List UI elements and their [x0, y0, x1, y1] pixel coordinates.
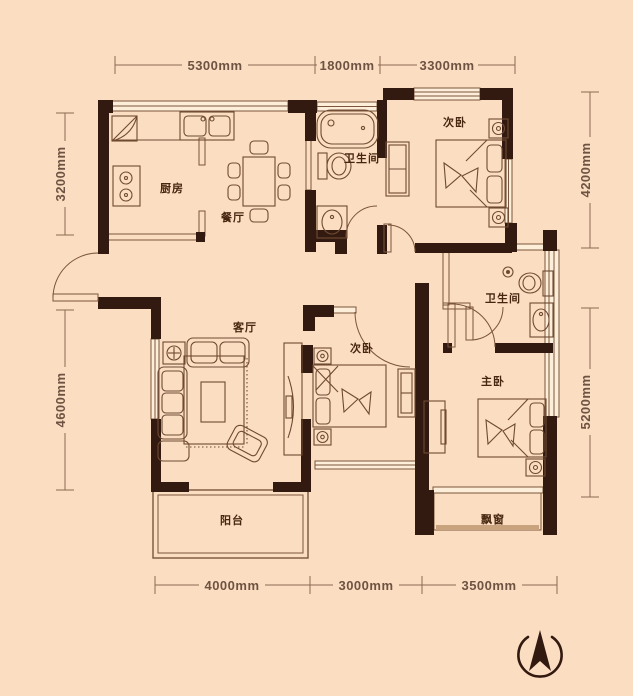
bathroom2-door: [466, 307, 503, 340]
dim-right-2: 5200mm: [578, 374, 593, 429]
dimensions-top: 5300mm 1800mm 3300mm: [115, 56, 515, 74]
room-label-bathroom1: 卫生间: [344, 151, 380, 165]
floor-plan-canvas: 厨房 餐厅 卫生间 次卧 客厅 次卧 卫生间 主卧 阳台 飘窗 5300mm 1…: [0, 0, 633, 696]
kitchen-sink: [180, 112, 234, 140]
loveseat: [187, 338, 249, 367]
wardrobe: [398, 369, 415, 417]
room-label-bathroom2: 卫生间: [485, 291, 521, 305]
wall-segment: [305, 190, 316, 252]
master-door: [448, 304, 495, 347]
entry-door: [53, 253, 98, 301]
floor-drain: [503, 267, 513, 277]
nightstand: [526, 459, 545, 476]
dim-top-1: 5300mm: [187, 58, 242, 73]
wall-segment: [417, 490, 434, 535]
doors: [53, 206, 503, 367]
room-label-balcony: 阳台: [220, 513, 244, 527]
dim-left-1: 3200mm: [53, 146, 68, 201]
living-furniture: [158, 338, 302, 464]
bathroom1-fixtures: [317, 110, 378, 238]
dim-bottom-2: 3000mm: [338, 578, 393, 593]
wall-segment: [151, 482, 189, 492]
dim-bottom-3: 3500mm: [461, 578, 516, 593]
corner-cabinet: [112, 116, 137, 141]
bedroom-top-door: [384, 224, 415, 252]
tv-cabinet: [284, 343, 302, 455]
coffee-table: [201, 382, 225, 422]
bay-window-east: [545, 250, 559, 417]
dimensions-right: 4200mm 5200mm: [578, 92, 599, 497]
wall-segment: [305, 100, 316, 141]
dim-bottom-1: 4000mm: [204, 578, 259, 593]
bathroom1-door: [346, 206, 377, 237]
room-label-living: 客厅: [232, 320, 257, 334]
wardrobe: [386, 142, 409, 196]
room-label-kitchen: 厨房: [160, 181, 184, 195]
window-bedroom-top: [414, 88, 480, 100]
room-label-bay-window: 飘窗: [481, 512, 505, 526]
chair: [250, 141, 268, 154]
dining-table: [243, 157, 275, 206]
wall-segment: [543, 230, 557, 251]
stove: [113, 166, 140, 206]
chair: [228, 185, 240, 200]
bed: [436, 140, 506, 207]
chair: [278, 185, 290, 200]
window-kitchen-top: [112, 101, 288, 111]
nightstand: [314, 348, 331, 364]
bedroom-mid-door: [355, 312, 410, 367]
dim-top-3: 3300mm: [419, 58, 474, 73]
room-label-dining: 餐厅: [220, 210, 245, 224]
dim-right-1: 4200mm: [578, 142, 593, 197]
wall-segment: [383, 88, 414, 100]
wall-segment: [303, 305, 315, 331]
bathtub: [317, 110, 378, 148]
window-bedroom-mid-bottom: [315, 461, 417, 469]
chair: [250, 209, 268, 222]
dim-left-2: 4600mm: [53, 372, 68, 427]
chair: [278, 163, 290, 178]
north-arrow-icon: [518, 630, 561, 677]
wall-segment: [335, 230, 347, 254]
wall-segment: [98, 112, 109, 242]
windows: [112, 88, 559, 530]
room-label-bedroom-mid: 次卧: [350, 341, 374, 355]
floor-plan-drawing: 厨房 餐厅 卫生间 次卧 客厅 次卧 卫生间 主卧 阳台 飘窗 5300mm 1…: [0, 0, 633, 696]
bed: [313, 365, 386, 427]
wall-segment: [377, 225, 387, 254]
wall-segment: [196, 232, 205, 242]
wall-segment: [151, 419, 161, 492]
master-furniture: [424, 399, 546, 476]
room-label-master: 主卧: [481, 374, 505, 388]
wall-segment: [495, 343, 553, 353]
dim-top-2: 1800mm: [319, 58, 374, 73]
dimensions-bottom: 4000mm 3000mm 3500mm: [155, 576, 557, 594]
wall-segment: [98, 240, 109, 254]
bedroom-top-furniture: [386, 119, 508, 227]
wall-segment: [415, 243, 512, 253]
side-table-lamp: [163, 342, 185, 364]
dining-furniture: [228, 141, 290, 222]
chair: [228, 163, 240, 178]
bed: [478, 399, 546, 457]
room-label-bedroom-top: 次卧: [443, 115, 467, 129]
nightstand: [314, 429, 331, 445]
wall-segment: [301, 345, 313, 373]
wall-segment: [151, 309, 161, 339]
wall-segment: [98, 297, 161, 309]
bedroom-mid-furniture: [313, 348, 415, 445]
wall-segment: [98, 100, 113, 113]
